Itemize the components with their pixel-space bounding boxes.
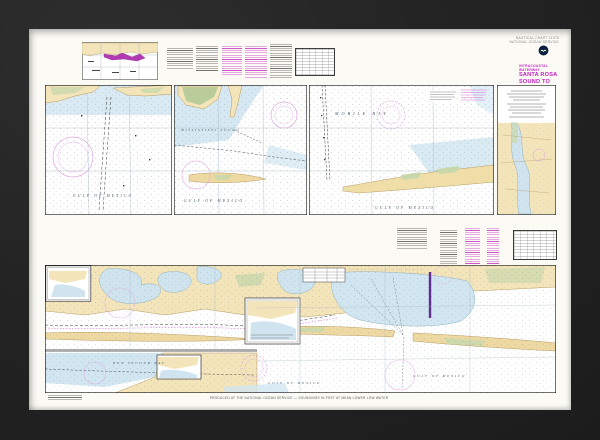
production-note: PRODUCED AT THE NATIONAL OCEAN SERVICE —…: [149, 396, 449, 400]
note-block: [48, 395, 82, 401]
note-block-magenta: [222, 46, 242, 76]
note-block: [196, 46, 218, 72]
note-block: [167, 48, 193, 70]
sea-label-gulf: GULF OF MEXICO: [73, 194, 133, 198]
chart-series-label: INTRACOASTAL WATERWAY: [519, 64, 559, 72]
chart-panel-mobile-bay: MOBILE BAY GULF OF MEXICO: [309, 85, 494, 215]
tide-table: [295, 48, 335, 76]
chart-panel-mississippi-sound: MISSISSIPPI SOUND GULF OF MEXICO: [174, 85, 307, 215]
mini-table: [303, 268, 345, 282]
tide-table: [513, 230, 557, 260]
inset-map-box: [245, 298, 300, 344]
chart-panel-intracoastal: BON SECOUR BAY GULF OF MEXICO GULF OF ME…: [45, 265, 556, 393]
sea-label-bon-secour: BON SECOUR BAY: [113, 361, 166, 365]
note-block-magenta: [487, 228, 499, 264]
sea-label-gulf: GULF OF MEXICO: [375, 206, 435, 210]
note-block-magenta: [465, 228, 480, 266]
inset-map-box: [46, 266, 91, 301]
framed-nautical-chart: NAUTICAL CHART 11378 NATIONAL OCEAN SERV…: [0, 0, 600, 440]
note-block: [440, 230, 457, 264]
note-block-magenta: [245, 46, 267, 78]
chart-panel-bay-entrance: GULF OF MEXICO: [45, 85, 172, 215]
sea-label-mississippi-sound: MISSISSIPPI SOUND: [180, 128, 240, 132]
chart-paper: NAUTICAL CHART 11378 NATIONAL OCEAN SERV…: [29, 29, 571, 410]
inset-map-box: [157, 355, 201, 379]
chart-title-line: SANTA ROSA: [519, 72, 559, 78]
index-map: [82, 42, 158, 80]
sea-label-gulf: GULF OF MEXICO: [184, 199, 244, 203]
sea-label-gulf: GULF OF MEXICO: [413, 374, 466, 378]
note-block: [397, 228, 427, 250]
chart-panel-right-inset: [497, 85, 556, 215]
catalog-agency: NATIONAL OCEAN SERVICE: [499, 40, 559, 44]
sea-label-mobile-bay: MOBILE BAY: [334, 111, 389, 116]
noaa-emblem-icon: [538, 45, 549, 56]
sea-label-gulf: GULF OF MEXICO: [268, 381, 321, 385]
note-block: [270, 44, 292, 78]
